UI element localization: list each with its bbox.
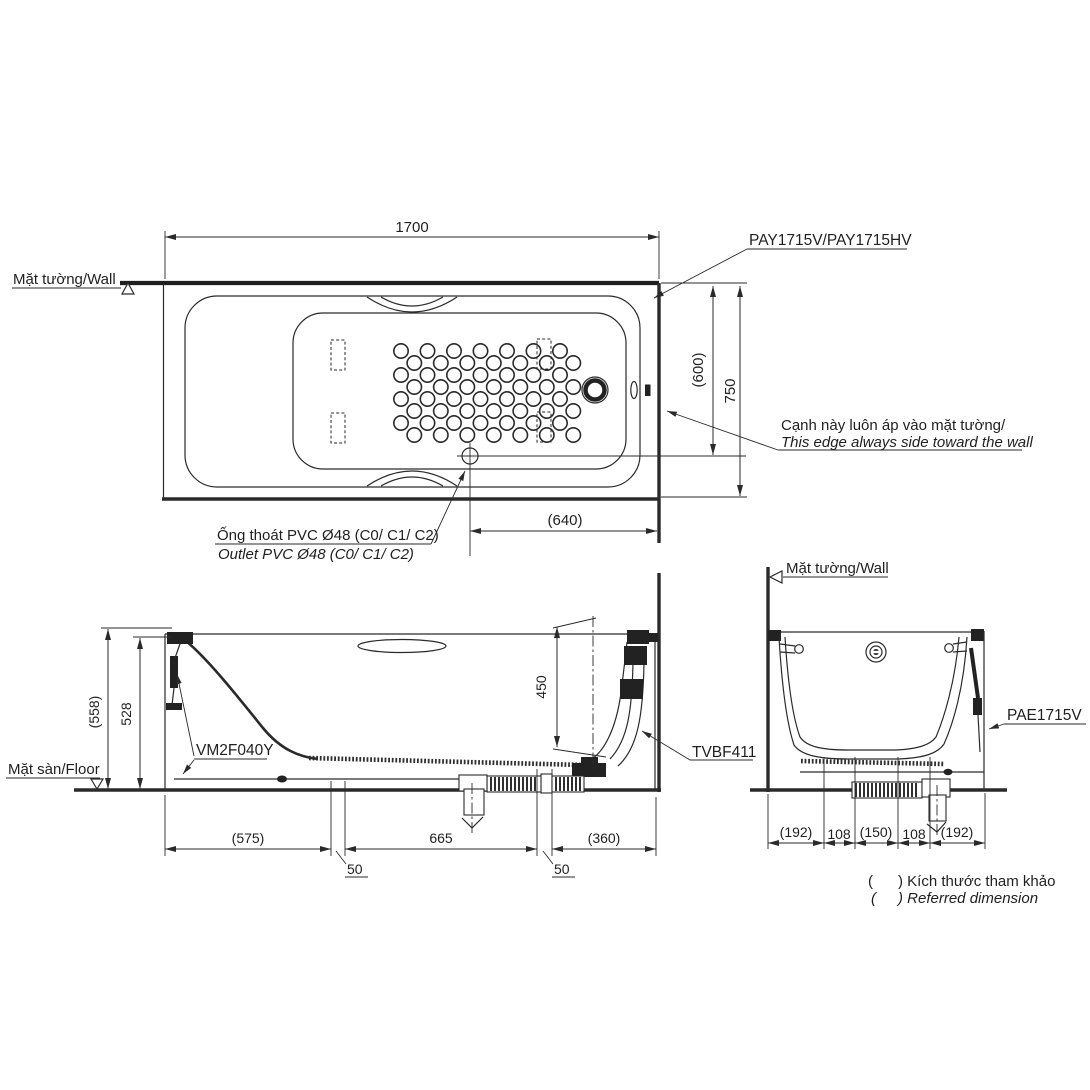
side-view: Mặt sàn/Floor xyxy=(6,573,756,877)
dim-575-text: (575) xyxy=(232,830,265,846)
floor-datum: Mặt sàn/Floor xyxy=(6,761,103,789)
wall-label-plan: Mặt tường/Wall xyxy=(13,271,116,288)
dim-outlet-offset-text: (640) xyxy=(547,512,582,529)
dim-192b-text: (192) xyxy=(941,824,974,840)
paren-open-en: ( xyxy=(871,890,878,907)
anti-slip-pattern xyxy=(394,344,581,442)
grip-handles-plan xyxy=(367,297,457,486)
note-outlet: Ống thoát PVC Ø48 (C0/ C1/ C2) Outlet PV… xyxy=(215,471,465,563)
drain-end xyxy=(866,642,886,662)
dim-360-text: (360) xyxy=(588,830,621,846)
dim-width-group: (600) 750 xyxy=(478,283,747,497)
floor-label: Mặt sàn/Floor xyxy=(8,761,100,778)
dim-108b-text: 108 xyxy=(902,826,926,842)
dim-width-text: 750 xyxy=(722,378,739,403)
drain-piping-side xyxy=(459,774,584,833)
note-edge-to-wall: Cạnh này luôn áp vào mặt tường/ This edg… xyxy=(667,411,1033,451)
reference-notes: ( ) Kích thước tham khảo ( ) Referred di… xyxy=(868,873,1055,907)
tub-model-text: PAY1715V/PAY1715HV xyxy=(749,232,912,249)
legs-model-text: VM2F040Y xyxy=(196,742,274,759)
label-apron-model: PAE1715V xyxy=(989,707,1086,729)
dim-length-1700: 1700 xyxy=(165,219,659,279)
dim-192a-text: (192) xyxy=(780,824,813,840)
tub-rim-outline xyxy=(185,296,640,487)
wall-label-end: Mặt tường/Wall xyxy=(786,560,889,577)
paren-open-vi: ( xyxy=(868,873,873,890)
dim-heights-side: (558) 528 450 xyxy=(86,618,606,789)
dim-width-ref-text: (600) xyxy=(690,352,707,387)
support-leg-end xyxy=(800,648,984,775)
dim-50b-text: 50 xyxy=(554,861,570,877)
grip-handle-side xyxy=(358,640,446,653)
tub-footprint-outline xyxy=(162,283,659,543)
bathtub-technical-drawing-page: Mặt tường/Wall xyxy=(0,0,1090,1090)
dim-528-text: 528 xyxy=(118,702,134,726)
wall-datum-plan: Mặt tường/Wall xyxy=(12,271,659,294)
ref-note-vi: ) Kích thước tham khảo xyxy=(898,873,1055,890)
dim-108a-text: 108 xyxy=(827,826,851,842)
edge-note-en: This edge always side toward the wall xyxy=(781,434,1033,451)
outlet-note-vi: Ống thoát PVC Ø48 (C0/ C1/ C2) xyxy=(217,526,439,544)
waste-kit-text: TVBF411 xyxy=(692,744,756,761)
dim-length-text: 1700 xyxy=(395,219,428,236)
technical-drawing: Mặt tường/Wall xyxy=(0,0,1090,1090)
overflow-waste-side xyxy=(572,616,658,777)
apron-model-text: PAE1715V xyxy=(1007,707,1082,724)
edge-note-vi: Cạnh này luôn áp vào mặt tường/ xyxy=(781,417,1006,434)
plan-view: Mặt tường/Wall xyxy=(12,219,1033,563)
dim-50a-text: 50 xyxy=(347,861,363,877)
dim-558-text: (558) xyxy=(86,696,102,729)
dim-665-text: 665 xyxy=(429,830,453,846)
outlet-note-en: Outlet PVC Ø48 (C0/ C1/ C2) xyxy=(218,546,414,563)
dim-150-text: (150) xyxy=(860,824,893,840)
outlet-symbol-plan xyxy=(457,443,483,465)
end-view: Mặt tường/Wall xyxy=(750,560,1086,849)
wall-datum-end: Mặt tường/Wall xyxy=(770,560,889,583)
label-tub-model: PAY1715V/PAY1715HV xyxy=(654,232,912,298)
ref-note-en: ) Referred dimension xyxy=(896,890,1038,907)
dim-chain-end: (192) 108 (150) 108 (192) xyxy=(768,757,985,849)
dim-450-text: 450 xyxy=(533,675,549,699)
